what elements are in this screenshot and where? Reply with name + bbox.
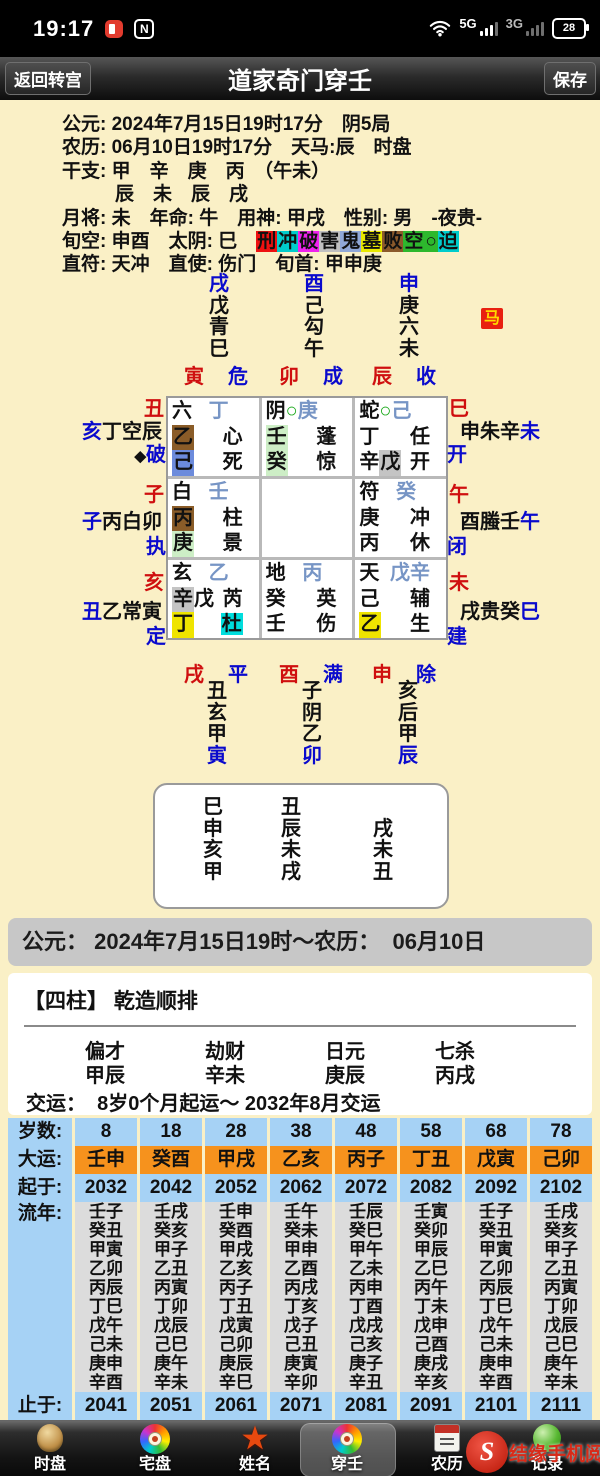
palace-token: 惊	[316, 451, 336, 473]
liunian-entry: 壬寅	[400, 1202, 462, 1221]
dayun-label-column: 岁数:大运:起于:流年:止于:	[8, 1118, 72, 1420]
liunian-entry: 庚午	[140, 1354, 202, 1373]
palace-token: 开	[410, 451, 430, 473]
palace-token: 癸	[396, 481, 416, 503]
side-sub-char: 破	[146, 444, 166, 466]
dayun-column-6: 58丁丑2082壬寅癸卯甲辰乙巳丙午丁未戊申己酉庚戌辛亥2091	[400, 1118, 462, 1420]
palace-cell-row: 丙休	[355, 531, 446, 557]
ring-char: 阴	[301, 703, 323, 725]
palace-token: 心	[223, 426, 243, 448]
end-year-cell: 2071	[270, 1392, 332, 1420]
palace-token: 丙	[172, 506, 194, 532]
branch-char: 亥	[144, 566, 164, 595]
palace-token: 辅	[410, 587, 430, 613]
jianchu-star: 成	[323, 366, 343, 388]
palace-token: 壬	[209, 480, 229, 506]
jianchu-star: 满	[323, 664, 343, 686]
liunian-entry: 壬子	[465, 1202, 527, 1221]
palace-cell-6[interactable]: 符癸庚冲丙休	[355, 479, 446, 557]
state-badge: 害	[319, 231, 340, 252]
palace-token: 死	[223, 450, 243, 476]
liunian-entry: 甲寅	[465, 1240, 527, 1259]
palace-cell-row: 癸惊	[262, 450, 353, 476]
palace-token: 开	[410, 450, 430, 476]
liunian-cell-group: 壬子癸丑甲寅乙卯丙辰丁巳戊午己未庚申辛酉	[75, 1202, 137, 1392]
liunian-entry: 甲寅	[75, 1240, 137, 1259]
liunian-entry: 己未	[465, 1335, 527, 1354]
palace-side-sub: 执	[0, 530, 166, 559]
palace-cell-3[interactable]: 蛇○己丁任辛戊开	[355, 398, 446, 476]
info-line: 公元: 2024年7月15日19时17分 阴5局	[62, 113, 592, 136]
ring-char: 庚	[398, 296, 420, 318]
ring-char: 丑	[206, 681, 228, 703]
age-cell: 58	[400, 1118, 462, 1146]
palace-side-label: 申朱辛未	[460, 415, 540, 444]
branch-box-char: 戌	[279, 862, 303, 884]
palace-token: 辛	[172, 587, 194, 613]
liunian-entry: 戊戌	[335, 1316, 397, 1335]
liunian-entry: 壬辰	[335, 1202, 397, 1221]
age-cell: 28	[205, 1118, 267, 1146]
jianchu-star: 收	[416, 366, 436, 388]
liunian-entry: 庚辰	[205, 1354, 267, 1373]
palace-cell-row: 庚冲	[355, 506, 446, 532]
state-badge: 败	[382, 231, 403, 252]
liunian-entry: 己巳	[530, 1335, 592, 1354]
branch-char: 子	[144, 478, 164, 507]
liunian-entry: 乙亥	[205, 1259, 267, 1278]
palace-token: 乙	[359, 612, 381, 638]
upper-ring-column: 申庚六未	[398, 274, 420, 360]
dayun-column-4: 38乙亥2062壬午癸未甲申乙酉丙戌丁亥戊子己丑庚寅辛卯2071	[270, 1118, 332, 1420]
end-year-cell: 2051	[140, 1392, 202, 1420]
ring-char: 己	[303, 296, 325, 318]
side-label-char: 巳	[520, 601, 540, 623]
liunian-entry: 戊午	[75, 1316, 137, 1335]
palace-token: 辅	[410, 588, 430, 610]
liunian-entry: 丙寅	[140, 1278, 202, 1297]
liunian-entry: 庚子	[335, 1354, 397, 1373]
liunian-entry: 癸卯	[400, 1221, 462, 1240]
wifi-icon	[429, 20, 451, 37]
palace-token: 生	[410, 613, 430, 635]
dayun-column-5: 48丙子2072壬辰癸巳甲午乙未丙申丁酉戊戌己亥庚子辛丑2081	[335, 1118, 397, 1420]
dayun-column-7: 68戊寅2092壬子癸丑甲寅乙卯丙辰丁巳戊午己未庚申辛酉2101	[465, 1118, 527, 1420]
liunian-entry: 庚午	[530, 1354, 592, 1373]
dayun-column-3: 28甲戌2052壬申癸酉甲戌乙亥丙子丁丑戊寅己卯庚辰辛巳2061	[205, 1118, 267, 1420]
branch-box-char: 丑	[279, 797, 303, 819]
palace-cell-row: 辛戊芮	[168, 587, 259, 613]
status-bar: 19:17 N 5G 3G 28	[0, 0, 600, 57]
liunian-entry: 己卯	[205, 1335, 267, 1354]
age-cell: 8	[75, 1118, 137, 1146]
palace-token: 地	[266, 561, 286, 587]
ring-char: 玄	[206, 703, 228, 725]
liunian-entry: 戊午	[465, 1316, 527, 1335]
liunian-entry: 癸酉	[205, 1221, 267, 1240]
liunian-entry: 甲子	[140, 1240, 202, 1259]
palace-token: 心	[223, 425, 243, 451]
ring-char: 未	[398, 339, 420, 361]
palace-cell-row: 乙生	[355, 612, 446, 638]
age-cell: 68	[465, 1118, 527, 1146]
palace-cell-row: 己死	[168, 450, 259, 476]
dayun-cell[interactable]: 乙亥	[270, 1146, 332, 1174]
title-bar: 返回转宫 道家奇门穿壬 保存	[0, 57, 600, 100]
palace-token: 生	[410, 612, 430, 638]
branch-char: 申	[398, 274, 420, 296]
ring-char: 青	[208, 317, 230, 339]
palace-token: 乙	[172, 425, 194, 451]
palace-cell-row: 符癸	[355, 480, 446, 506]
palace-token: 庚	[298, 399, 318, 425]
liunian-entry: 壬子	[75, 1202, 137, 1221]
branch-box-char	[371, 797, 395, 819]
liunian-entry: 辛亥	[400, 1373, 462, 1392]
palace-token: 惊	[316, 450, 336, 476]
liunian-entry: 乙卯	[465, 1259, 527, 1278]
liunian-entry: 辛卯	[270, 1373, 332, 1392]
liunian-entry: 戊辰	[140, 1316, 202, 1335]
palace-side-label: 戌贵癸巳	[460, 595, 540, 624]
liunian-entry: 甲辰	[400, 1240, 462, 1259]
palace-cell-8[interactable]: 地丙癸英壬伤	[262, 560, 353, 638]
end-year-cell: 2111	[530, 1392, 592, 1420]
clock: 19:17	[33, 16, 94, 42]
palace-token: 阴	[266, 399, 286, 425]
palace-token: 己	[359, 587, 379, 613]
palace-cell-2[interactable]: 阴○庚壬蓬癸惊	[262, 398, 353, 476]
palace-cell-4[interactable]: 白壬丙柱庚景	[168, 479, 259, 557]
pillar-value: 庚辰	[310, 1059, 380, 1088]
nav-item-label: 宅盘	[120, 1450, 190, 1474]
palace-box: 六丁乙心己死阴○庚壬蓬癸惊蛇○己丁任辛戊开白壬丙柱庚景符癸庚冲丙休玄乙辛戊芮丁杜…	[166, 396, 448, 640]
branch-char: 戌	[184, 664, 204, 686]
jianchu-pair: 卯成	[279, 360, 343, 389]
liunian-entry: 庚申	[465, 1354, 527, 1373]
palace-token: 死	[223, 451, 243, 473]
liunian-entry: 辛未	[140, 1373, 202, 1392]
nine-palace-grid: 六丁乙心己死阴○庚壬蓬癸惊蛇○己丁任辛戊开白壬丙柱庚景符癸庚冲丙休玄乙辛戊芮丁杜…	[0, 390, 600, 648]
pillar-value: 甲辰	[70, 1059, 140, 1088]
liunian-entry: 丁巳	[75, 1297, 137, 1316]
branch-box-char: 巳	[201, 797, 225, 819]
side-sub-char: 开	[447, 444, 467, 466]
palace-cell-5[interactable]	[262, 479, 353, 557]
screen-record-icon	[105, 20, 123, 38]
ring-char: 甲	[206, 724, 228, 746]
jiaoyun-line: 交运： 8岁0个月起运～ 2032年8月交运	[26, 1087, 381, 1116]
branch-char: 酉	[303, 274, 325, 296]
save-button[interactable]: 保存	[544, 62, 596, 95]
palace-token: 任	[410, 426, 430, 448]
palace-token: 休	[410, 531, 430, 557]
upper-ring-column: 酉己勾午	[303, 274, 325, 360]
palace-token: 蓬	[316, 426, 336, 448]
palace-token: 芮	[223, 588, 243, 610]
jianchu-star: 除	[416, 664, 436, 686]
info-badge-prefix: 旬空: 申酉 太阴: 巳	[62, 231, 256, 252]
palace-token: 伤	[316, 612, 336, 638]
palace-token: 丁	[209, 400, 229, 422]
palace-token: 蓬	[316, 425, 336, 451]
liunian-entry: 乙丑	[140, 1259, 202, 1278]
branch-box-char: 戌	[371, 819, 395, 841]
palace-cell-1[interactable]: 六丁乙心己死	[168, 398, 259, 476]
liunian-entry: 乙酉	[270, 1259, 332, 1278]
branch-box-char: 申	[201, 819, 225, 841]
branch-char: 寅	[184, 366, 204, 388]
upper-ring: 戌戊青巳酉己勾午申庚六未马寅危卯成辰收	[0, 272, 600, 390]
dayun-cell[interactable]: 甲戌	[205, 1146, 267, 1174]
liunian-entry: 壬戌	[530, 1202, 592, 1221]
palace-token: 戊辛	[390, 561, 430, 587]
jianchu-pair: 寅危	[184, 360, 248, 389]
palace-token: 景	[223, 531, 243, 557]
start-year-cell: 2042	[140, 1174, 202, 1202]
liunian-entry: 丙辰	[465, 1278, 527, 1297]
signal-5g-icon: 5G	[459, 22, 497, 36]
palace-cell-row: 六丁	[168, 399, 259, 425]
palace-cell-row: 丙柱	[168, 506, 259, 532]
palace-cell-row: 玄乙	[168, 561, 259, 587]
palace-token: 休	[410, 532, 430, 554]
palace-token: 任	[410, 425, 430, 451]
ring-char: 乙	[301, 724, 323, 746]
age-cell: 78	[530, 1118, 592, 1146]
row-label-end: 止于:	[8, 1392, 72, 1420]
palace-cell-row: 己辅	[355, 587, 446, 613]
palace-token: 六	[172, 399, 192, 425]
liunian-entry: 丁亥	[270, 1297, 332, 1316]
nav-item-2[interactable]: 宅盘	[120, 1422, 190, 1476]
start-year-cell: 2052	[205, 1174, 267, 1202]
battery-percent: 28	[563, 22, 575, 34]
row-label-dayun: 大运:	[8, 1146, 72, 1174]
palace-side-sub: 开	[447, 438, 467, 467]
start-year-cell: 2102	[530, 1174, 592, 1202]
liunian-entry: 己酉	[400, 1335, 462, 1354]
palace-cell-row: 壬蓬	[262, 425, 353, 451]
palace-token: 符	[359, 480, 379, 506]
age-cell: 18	[140, 1118, 202, 1146]
liunian-entry: 己亥	[335, 1335, 397, 1354]
liunian-entry: 戊寅	[205, 1316, 267, 1335]
palace-token: 庚	[359, 506, 379, 532]
palace-token: 丁	[359, 425, 379, 451]
side-sub-char: ◆	[134, 448, 146, 465]
branch-box: 巳申亥甲丑辰未戌 戌未丑	[153, 783, 449, 909]
side-label-char: 午	[520, 511, 540, 533]
palace-token: 庚	[172, 531, 194, 557]
row-label-start: 起于:	[8, 1174, 72, 1202]
palace-cell-7[interactable]: 玄乙辛戊芮丁杜	[168, 560, 259, 638]
liunian-entry: 丙寅	[530, 1278, 592, 1297]
branch-box-char: 未	[371, 840, 395, 862]
end-year-cell: 2081	[335, 1392, 397, 1420]
palace-cell-row: 白壬	[168, 480, 259, 506]
liunian-entry: 乙卯	[75, 1259, 137, 1278]
jianchu-star: 平	[228, 664, 248, 686]
side-label-char: 戌贵癸	[460, 601, 520, 623]
ring-char: 勾	[303, 317, 325, 339]
state-badge: 刑	[256, 231, 277, 252]
palace-token: 乙	[209, 561, 229, 587]
age-cell: 38	[270, 1118, 332, 1146]
palace-cell-row: 乙心	[168, 425, 259, 451]
dayun-cell[interactable]: 丙子	[335, 1146, 397, 1174]
liunian-entry: 丁丑	[205, 1297, 267, 1316]
liunian-entry: 癸丑	[75, 1221, 137, 1240]
age-cell: 48	[335, 1118, 397, 1146]
date-range-bar: 公元： 2024年7月15日19时～农历： 06月10日	[8, 918, 592, 966]
side-label-char: 未	[520, 421, 540, 443]
branch-box-char: 亥	[201, 840, 225, 862]
liunian-entry: 壬戌	[140, 1202, 202, 1221]
palace-token: 壬	[209, 481, 229, 503]
palace-cell-9[interactable]: 天戊辛己辅乙生	[355, 560, 446, 638]
nav-item-4-selected[interactable]: 穿壬	[312, 1422, 382, 1476]
pillar-value: 丙戌	[420, 1059, 490, 1088]
branch-box-char: 甲	[201, 862, 225, 884]
lower-ring-column: 丑玄甲寅	[206, 681, 228, 767]
branch-box-column: 巳申亥甲	[201, 797, 225, 883]
state-badge: 冲	[277, 231, 298, 252]
side-sub-char: 闭	[447, 536, 467, 558]
branch-char: 辰	[397, 746, 419, 768]
dayun-cell[interactable]: 己卯	[530, 1146, 592, 1174]
ring-char: 甲	[397, 724, 419, 746]
liunian-entry: 庚戌	[400, 1354, 462, 1373]
dayun-column-8: 78己卯2102壬戌癸亥甲子乙丑丙寅丁卯戊辰己巳庚午辛未2111	[530, 1118, 592, 1420]
nav-item-label: 穿壬	[312, 1450, 382, 1474]
jianchu-pair: 辰收	[372, 360, 436, 389]
row-label-liunian: 流年:	[8, 1202, 72, 1392]
info-line: 农历: 06月10日19时17分 天马:辰 时盘	[62, 136, 592, 159]
start-year-cell: 2092	[465, 1174, 527, 1202]
watermark: S 结缘手机阅	[466, 1431, 600, 1473]
liunian-entry: 庚申	[75, 1354, 137, 1373]
palace-token: 戊辛	[390, 562, 430, 584]
ring-char: 亥	[397, 681, 419, 703]
palace-token: 白	[172, 480, 192, 506]
palace-token: 癸	[396, 480, 416, 506]
branch-box-char: 丑	[371, 862, 395, 884]
nav-item-label: 时盘	[15, 1450, 85, 1474]
palace-token: 景	[223, 532, 243, 554]
ring-char: 午	[303, 339, 325, 361]
palace-cell-row: 丁杜	[168, 612, 259, 638]
dayun-cell[interactable]: 戊寅	[465, 1146, 527, 1174]
dayun-column-2: 18癸酉2042壬戌癸亥甲子乙丑丙寅丁卯戊辰己巳庚午辛未2051	[140, 1118, 202, 1420]
liunian-entry: 丙午	[400, 1278, 462, 1297]
liunian-entry: 己未	[75, 1335, 137, 1354]
dayun-cell[interactable]: 丁丑	[400, 1146, 462, 1174]
watermark-logo: S	[466, 1431, 508, 1473]
palace-token: 英	[316, 588, 336, 610]
liunian-entry: 辛未	[530, 1373, 592, 1392]
state-badge: 迫	[438, 231, 459, 252]
liunian-cell-group: 壬子癸丑甲寅乙卯丙辰丁巳戊午己未庚申辛酉	[465, 1202, 527, 1392]
palace-token: 柱	[223, 506, 243, 532]
palace-token: 柱	[223, 507, 243, 529]
start-year-cell: 2082	[400, 1174, 462, 1202]
palace-token: 玄	[172, 561, 192, 587]
ring-char: 六	[398, 317, 420, 339]
liunian-entry: 丁巳	[465, 1297, 527, 1316]
palace-cell-row: 丁任	[355, 425, 446, 451]
liunian-entry: 己丑	[270, 1335, 332, 1354]
liunian-entry: 丙辰	[75, 1278, 137, 1297]
nav-item-label: 姓名	[220, 1450, 290, 1474]
branch-char: 午	[449, 478, 469, 507]
palace-cell-row: 阴○庚	[262, 399, 353, 425]
liunian-entry: 甲申	[270, 1240, 332, 1259]
dayun-cell[interactable]: 癸酉	[140, 1146, 202, 1174]
liunian-entry: 丙申	[335, 1278, 397, 1297]
side-label-char: 申朱辛	[460, 421, 520, 443]
liunian-entry: 丁酉	[335, 1297, 397, 1316]
horse-star-badge: 马	[481, 308, 503, 329]
palace-token: 癸	[266, 587, 286, 613]
dayun-table: 岁数:大运:起于:流年:止于:8壬申2032壬子癸丑甲寅乙卯丙辰丁巳戊午己未庚申…	[8, 1118, 592, 1420]
app-screen: 19:17 N 5G 3G 28 返回转宫 道家奇门穿壬 保存	[0, 0, 600, 1476]
liunian-entry: 戊子	[270, 1316, 332, 1335]
branch-char: 未	[449, 566, 469, 595]
branch-char: 辰	[372, 366, 392, 388]
info-line: 辰 未 辰 戌	[62, 183, 592, 206]
side-sub-char: 定	[146, 626, 166, 648]
liunian-entry: 乙巳	[400, 1259, 462, 1278]
chart-info-block: 公元: 2024年7月15日19时17分 阴5局农历: 06月10日19时17分…	[62, 113, 592, 277]
back-rotate-palace-button[interactable]: 返回转宫	[5, 62, 91, 95]
palace-token: 壬	[266, 425, 288, 451]
palace-cell-row: 庚景	[168, 531, 259, 557]
branch-char: 卯	[301, 746, 323, 768]
liunian-entry: 辛巳	[205, 1373, 267, 1392]
palace-token: 丁	[209, 399, 229, 425]
palace-token: 天	[359, 561, 379, 587]
palace-side-label: 酉螣壬午	[460, 505, 540, 534]
palace-cell-row: 癸英	[262, 587, 353, 613]
branch-char: 寅	[206, 746, 228, 768]
state-badge: 破	[298, 231, 319, 252]
signal-3g-icon: 3G	[506, 22, 544, 36]
lower-ring-column: 子阴乙卯	[301, 681, 323, 767]
palace-token: 冲	[410, 507, 430, 529]
liunian-entry: 壬午	[270, 1202, 332, 1221]
dayun-cell[interactable]: 壬申	[75, 1146, 137, 1174]
liunian-entry: 甲子	[530, 1240, 592, 1259]
liunian-entry: 乙未	[335, 1259, 397, 1278]
palace-token: 丙	[359, 531, 379, 557]
liunian-entry: 己巳	[140, 1335, 202, 1354]
liunian-cell-group: 壬申癸酉甲戌乙亥丙子丁丑戊寅己卯庚辰辛巳	[205, 1202, 267, 1392]
lower-ring-column: 亥后甲辰	[397, 681, 419, 767]
nav-item-1[interactable]: 时盘	[15, 1422, 85, 1476]
liunian-entry: 癸亥	[140, 1221, 202, 1240]
side-sub-char: 执	[146, 536, 166, 558]
liunian-cell-group: 壬辰癸巳甲午乙未丙申丁酉戊戌己亥庚子辛丑	[335, 1202, 397, 1392]
end-year-cell: 2061	[205, 1392, 267, 1420]
watermark-text: 结缘手机阅	[509, 1439, 600, 1466]
palace-cell-row: 壬伤	[262, 612, 353, 638]
nav-item-3[interactable]: ★姓名	[220, 1422, 290, 1476]
palace-token: 辛	[359, 450, 379, 476]
ring-char: 巳	[208, 339, 230, 361]
liunian-entry: 戊辰	[530, 1316, 592, 1335]
palace-cell-row: 地丙	[262, 561, 353, 587]
